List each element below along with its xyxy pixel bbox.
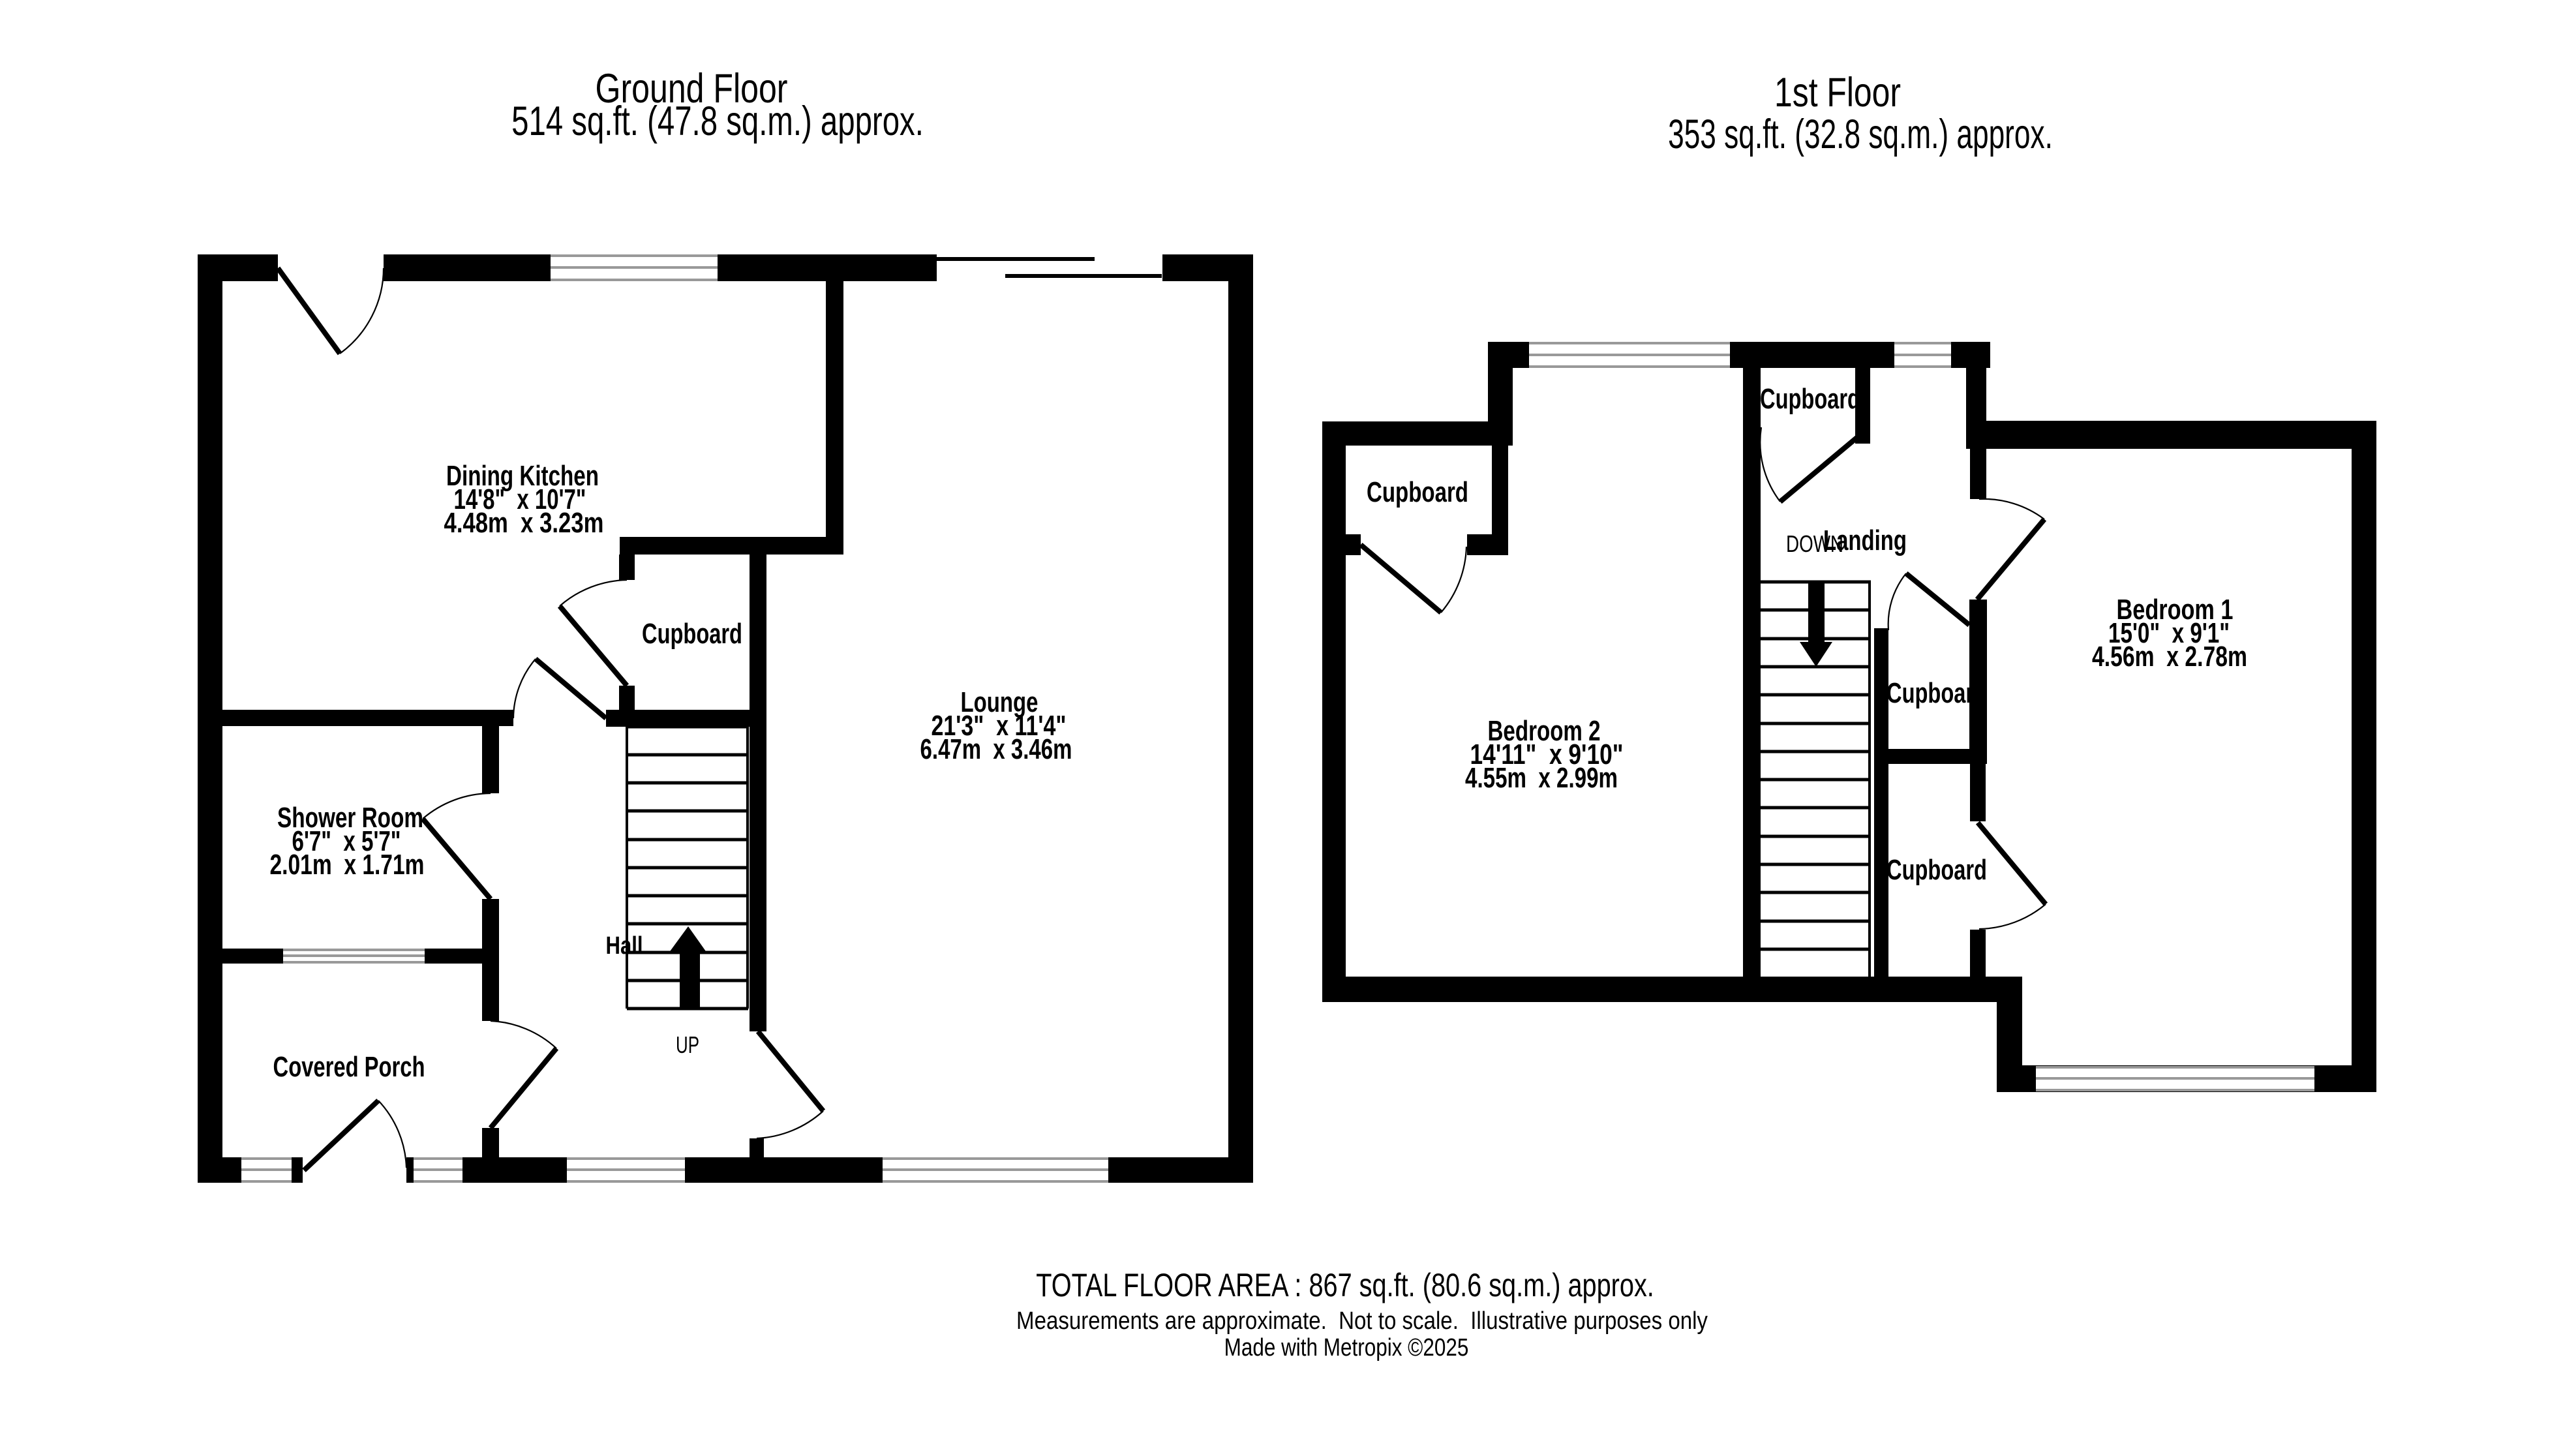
svg-text:Measurements are approximate.: Measurements are approximate. Not to sca… [1016, 1307, 1708, 1335]
svg-text:4.48m x 3.23m: 4.48m x 3.23m [444, 507, 604, 539]
svg-text:Covered Porch: Covered Porch [273, 1051, 425, 1083]
svg-text:TOTAL FLOOR AREA : 867 sq.ft.: TOTAL FLOOR AREA : 867 sq.ft. (80.6 sq.m… [1036, 1267, 1654, 1303]
svg-text:Cupboard: Cupboard [1760, 383, 1860, 415]
svg-text:Made with Metropix ©2025: Made with Metropix ©2025 [1224, 1333, 1469, 1361]
svg-text:1st Floor: 1st Floor [1774, 70, 1901, 116]
svg-text:353 sq.ft. (32.8 sq.m.) approx: 353 sq.ft. (32.8 sq.m.) approx. [1668, 111, 2053, 157]
svg-text:Cupboard: Cupboard [642, 618, 742, 650]
svg-text:Cupboard: Cupboard [1887, 854, 1987, 886]
svg-text:4.56m x 2.78m: 4.56m x 2.78m [2092, 641, 2247, 673]
svg-text:Cupboard: Cupboard [1367, 477, 1468, 509]
svg-text:4.55m x 2.99m: 4.55m x 2.99m [1465, 763, 1618, 795]
svg-text:UP: UP [676, 1032, 699, 1058]
svg-text:2.01m x 1.71m: 2.01m x 1.71m [270, 849, 425, 881]
svg-text:6.47m x 3.46m: 6.47m x 3.46m [920, 734, 1072, 766]
svg-text:Landing: Landing [1823, 525, 1907, 556]
svg-text:514 sq.ft. (47.8 sq.m.) approx: 514 sq.ft. (47.8 sq.m.) approx. [511, 98, 924, 144]
svg-text:Hall: Hall [606, 932, 643, 960]
